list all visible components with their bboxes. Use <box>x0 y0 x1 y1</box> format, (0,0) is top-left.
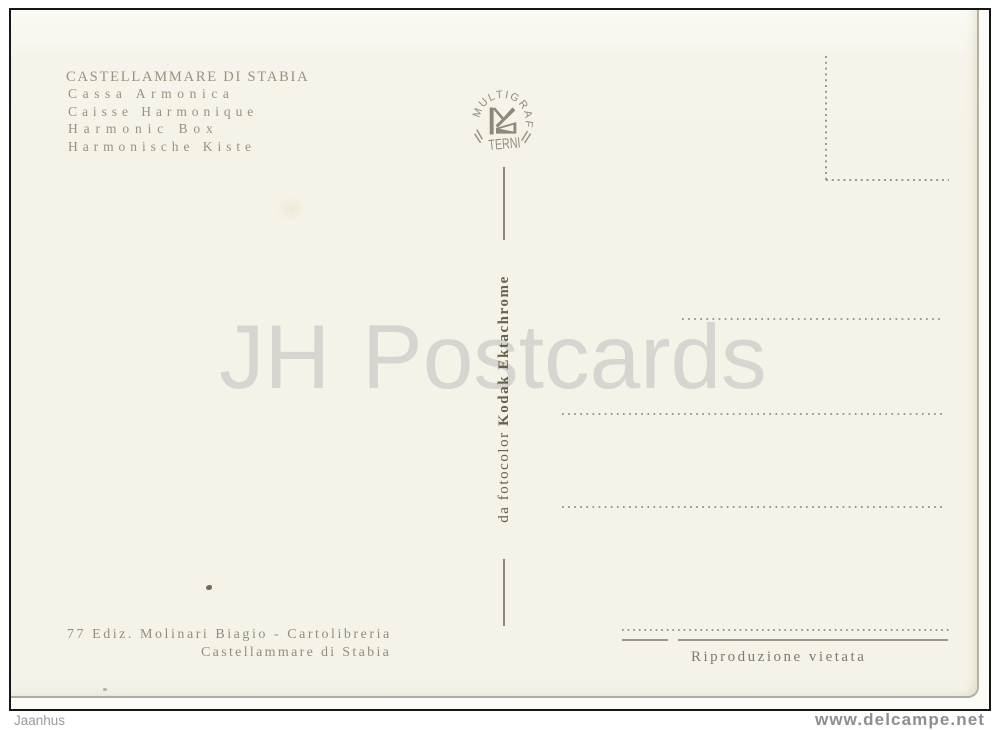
svg-text:MULTIGRAF: MULTIGRAF <box>471 89 535 130</box>
svg-text:TERNI: TERNI <box>488 134 521 154</box>
